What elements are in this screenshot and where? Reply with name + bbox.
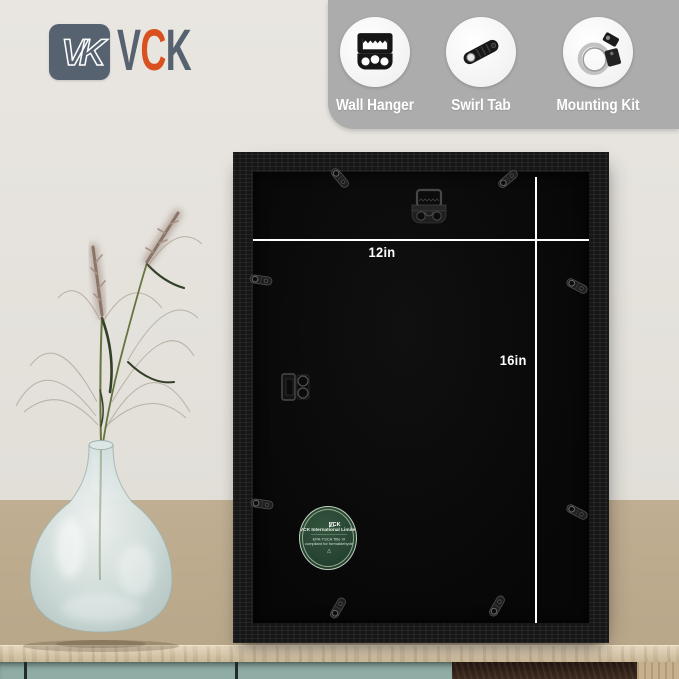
- wordmark-letter-accent: C: [140, 18, 165, 83]
- grass-wisps: [16, 237, 202, 428]
- swirl-tab-icon: [446, 17, 516, 87]
- sticker-recycle-icon: △: [327, 548, 331, 554]
- wall-hanger-hardware: [412, 190, 446, 223]
- feature-wall-hanger: Wall Hanger: [327, 17, 423, 122]
- vase-with-dried-grass: [0, 150, 230, 660]
- brand-logo-mark-icon: VK: [49, 24, 110, 80]
- vase-shadow-core: [56, 640, 146, 648]
- feature-label: Swirl Tab: [430, 97, 532, 115]
- sticker-content: VCK VCK International Limited EPA-TSCA T…: [300, 507, 357, 570]
- cabinet-open-shelf: [452, 662, 637, 679]
- width-dimension-line: [253, 239, 589, 241]
- wordmark-letter: V: [117, 18, 140, 83]
- wall-hanger-icon: [340, 17, 410, 87]
- brand-wordmark: VCK: [117, 22, 191, 80]
- sticker-compliance-line2: compliant for formaldehyde: [305, 542, 353, 547]
- frame-hardware: [233, 152, 609, 643]
- cabinet-seam: [235, 662, 238, 679]
- cabinet: [0, 662, 679, 679]
- side-bracket-hardware: [282, 374, 309, 400]
- cabinet-side-panel: [637, 662, 679, 679]
- mounting-kit-icon: [563, 17, 633, 87]
- sticker-company-line: VCK International Limited: [300, 527, 357, 533]
- width-dimension-label: 12in: [345, 244, 419, 260]
- height-dimension-line: [535, 177, 537, 623]
- grass-stems: [100, 263, 147, 443]
- brand-monogram: VK: [61, 32, 108, 73]
- wordmark-letter: K: [166, 18, 191, 83]
- height-dimension-label: 16in: [473, 352, 526, 368]
- picture-frame-back: 12in 16in VCK VCK International Limited …: [233, 152, 609, 643]
- cabinet-seam: [24, 662, 27, 679]
- compliance-sticker: VCK VCK International Limited EPA-TSCA T…: [299, 506, 357, 570]
- feature-swirl-tab: Swirl Tab: [433, 17, 529, 122]
- sticker-brand-text: VCK: [329, 522, 341, 528]
- glass-vase: [30, 441, 172, 633]
- feature-label: Mounting Kit: [547, 97, 649, 115]
- dried-flower-plumes: [91, 213, 178, 315]
- feature-label: Wall Hanger: [324, 97, 426, 115]
- sticker-divider: [311, 535, 347, 536]
- feature-mounting-kit: Mounting Kit: [550, 17, 646, 122]
- product-image: 12in 16in VCK VCK International Limited …: [0, 0, 679, 679]
